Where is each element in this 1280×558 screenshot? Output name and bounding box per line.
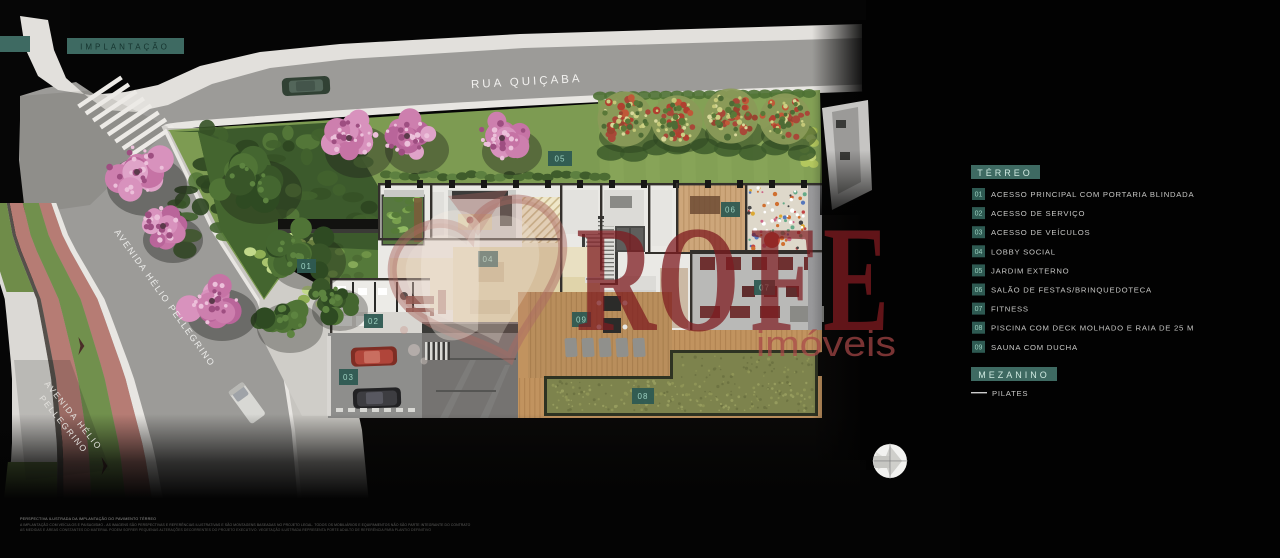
svg-text:ACESSO PRINCIPAL COM PORTARIA: ACESSO PRINCIPAL COM PORTARIA BLINDADA [991, 190, 1194, 199]
svg-text:LOBBY SOCIAL: LOBBY SOCIAL [991, 247, 1056, 256]
svg-text:IMPLANTAÇÃO: IMPLANTAÇÃO [80, 43, 170, 52]
svg-text:03: 03 [343, 373, 354, 382]
svg-text:ACESSO DE SERVIÇO: ACESSO DE SERVIÇO [991, 209, 1085, 218]
svg-text:01: 01 [975, 192, 983, 199]
svg-text:01: 01 [301, 262, 312, 271]
svg-text:08: 08 [975, 325, 983, 332]
svg-text:06: 06 [975, 287, 983, 294]
svg-text:PERSPECTIVA ILUSTRADA DA IMPLA: PERSPECTIVA ILUSTRADA DA IMPLANTAÇÃO DO … [20, 516, 156, 521]
svg-text:ACESSO DE VEÍCULOS: ACESSO DE VEÍCULOS [991, 228, 1090, 237]
svg-text:07: 07 [975, 306, 983, 313]
svg-text:R: R [576, 195, 658, 363]
svg-text:02: 02 [368, 317, 379, 326]
svg-text:imóveis: imóveis [756, 323, 896, 364]
svg-text:PILATES: PILATES [992, 389, 1028, 398]
svg-text:05: 05 [555, 154, 566, 163]
svg-text:O: O [656, 195, 740, 363]
svg-text:JARDIM EXTERNO: JARDIM EXTERNO [991, 266, 1069, 275]
svg-text:05: 05 [975, 268, 983, 275]
svg-text:AS MEDIDAS E ÁREAS CONSTANTES: AS MEDIDAS E ÁREAS CONSTANTES DO MATERIA… [20, 527, 431, 532]
svg-text:04: 04 [975, 249, 983, 256]
svg-text:TÉRREO: TÉRREO [977, 168, 1033, 178]
svg-text:FITNESS: FITNESS [991, 305, 1029, 314]
svg-text:MEZANINO: MEZANINO [978, 370, 1050, 380]
svg-text:A IMPLANTAÇÃO COM VEÍCULOS E P: A IMPLANTAÇÃO COM VEÍCULOS E PAISAGISMO … [20, 522, 471, 527]
svg-text:PISCINA COM DECK MOLHADO E RAI: PISCINA COM DECK MOLHADO E RAIA DE 25 M [991, 324, 1194, 333]
svg-text:02: 02 [975, 211, 983, 218]
svg-text:08: 08 [638, 392, 649, 401]
svg-text:SAUNA COM DUCHA: SAUNA COM DUCHA [991, 343, 1078, 352]
svg-text:03: 03 [975, 230, 983, 237]
svg-text:09: 09 [975, 344, 983, 351]
svg-text:SALÃO DE FESTAS/BRINQUEDOTECA: SALÃO DE FESTAS/BRINQUEDOTECA [991, 286, 1152, 295]
